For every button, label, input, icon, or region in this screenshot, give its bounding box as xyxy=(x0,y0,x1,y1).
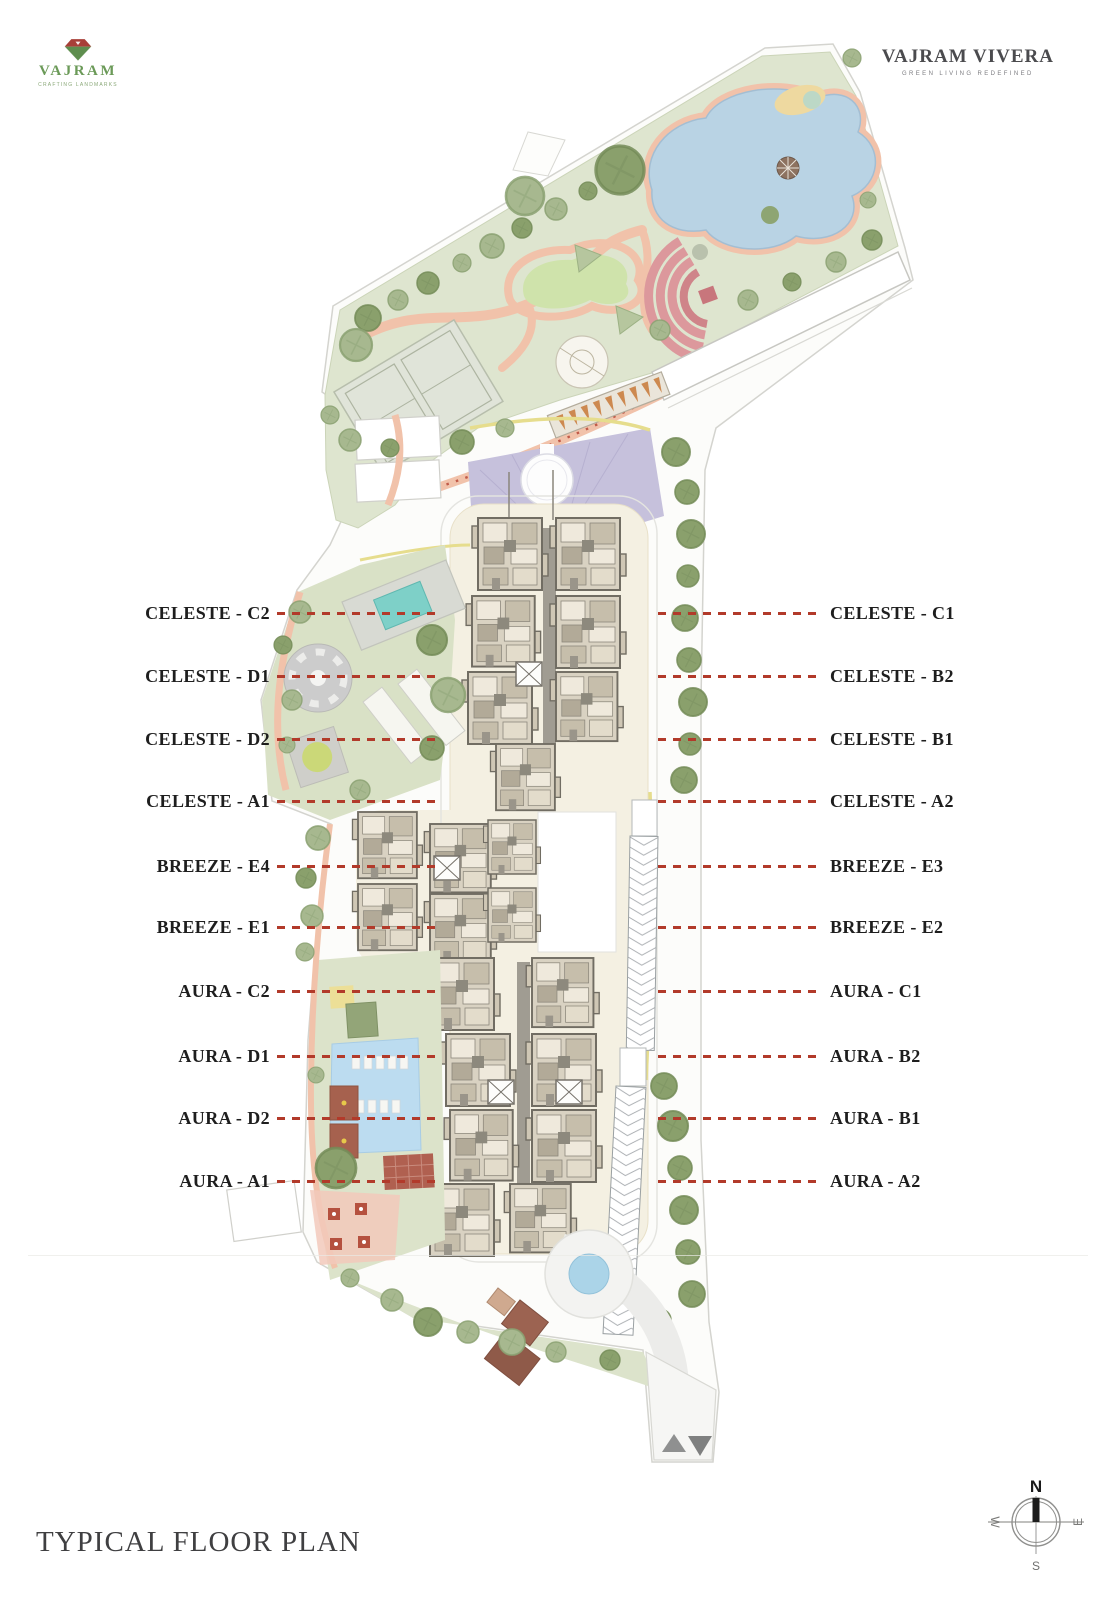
unit-label: AURA - B2 xyxy=(830,1045,921,1067)
leader-line xyxy=(658,800,818,803)
unit-label: CELESTE - B1 xyxy=(830,728,954,750)
unit-label: BREEZE - E3 xyxy=(830,855,943,877)
plan-labels-layer: CELESTE - C2CELESTE - D1CELESTE - D2CELE… xyxy=(0,0,1116,1600)
leader-line xyxy=(658,1117,818,1120)
plan-label-row-right: AURA - C1 xyxy=(0,980,1116,1002)
plan-label-row-right: AURA - A2 xyxy=(0,1170,1116,1192)
page-title: TYPICAL FLOOR PLAN xyxy=(36,1526,361,1559)
unit-label: CELESTE - C1 xyxy=(830,602,955,624)
unit-label: CELESTE - A2 xyxy=(830,790,954,812)
leader-line xyxy=(658,865,818,868)
plan-label-row-right: AURA - B2 xyxy=(0,1045,1116,1067)
unit-label: AURA - C1 xyxy=(830,980,922,1002)
unit-label: CELESTE - B2 xyxy=(830,665,954,687)
plan-label-row-right: CELESTE - C1 xyxy=(0,602,1116,624)
leader-line xyxy=(658,1180,818,1183)
unit-label: AURA - A2 xyxy=(830,1170,921,1192)
leader-line xyxy=(658,990,818,993)
compass-needle xyxy=(1033,1498,1040,1522)
leader-line xyxy=(658,675,818,678)
plan-label-row-right: CELESTE - A2 xyxy=(0,790,1116,812)
plan-label-row-right: BREEZE - E3 xyxy=(0,855,1116,877)
compass-south-label: S xyxy=(1032,1559,1040,1573)
leader-line xyxy=(658,926,818,929)
compass-east-label: E xyxy=(1071,1518,1085,1526)
brochure-page: VAJRAM CRAFTING LANDMARKS VAJRAM VIVERA … xyxy=(0,0,1116,1600)
plan-label-row-right: AURA - B1 xyxy=(0,1107,1116,1129)
plan-label-row-right: BREEZE - E2 xyxy=(0,916,1116,938)
plan-label-row-right: CELESTE - B1 xyxy=(0,728,1116,750)
unit-label: BREEZE - E2 xyxy=(830,916,943,938)
leader-line xyxy=(658,738,818,741)
leader-line xyxy=(658,612,818,615)
compass-north-label: N xyxy=(1030,1477,1042,1496)
unit-label: AURA - B1 xyxy=(830,1107,921,1129)
leader-line xyxy=(658,1055,818,1058)
compass-rose-icon: N S W E xyxy=(980,1466,1092,1578)
plan-label-row-right: CELESTE - B2 xyxy=(0,665,1116,687)
compass-west-label: W xyxy=(988,1516,1002,1528)
